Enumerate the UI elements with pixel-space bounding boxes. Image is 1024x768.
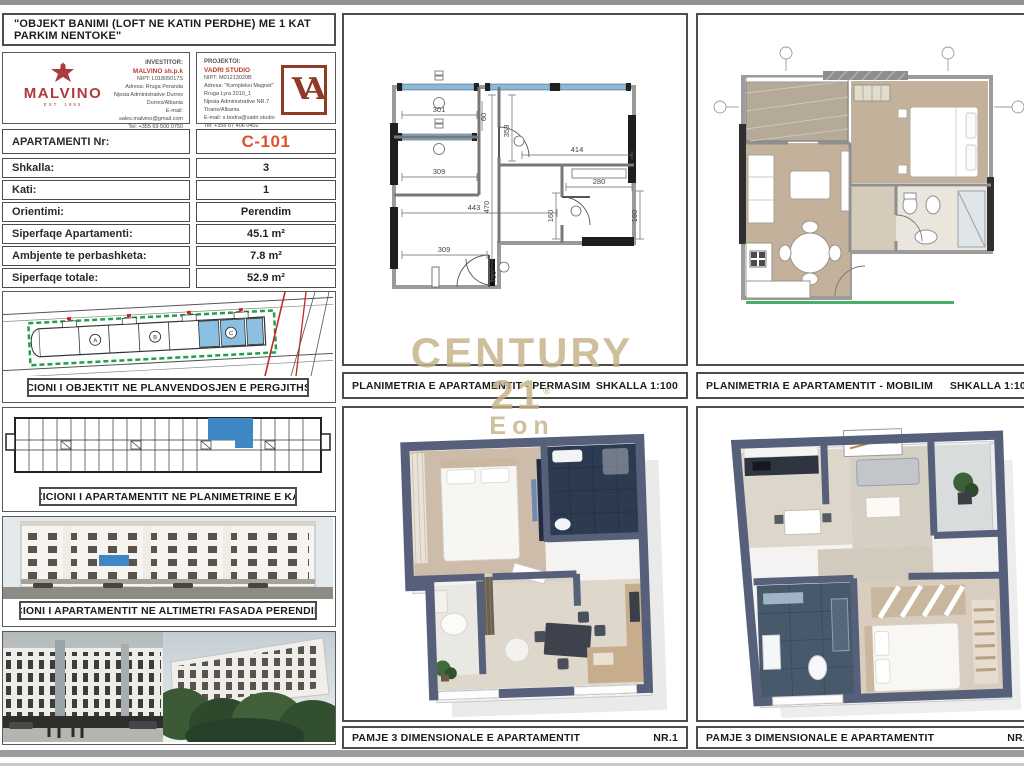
key-plan-drawing xyxy=(3,408,333,484)
elevation-highlighted-apartment xyxy=(99,555,129,566)
view2-clothes-rail xyxy=(971,599,998,684)
site-unit-b-label: B xyxy=(153,335,157,341)
mobilim-plan-panel xyxy=(696,13,1024,366)
photo-car xyxy=(129,721,157,729)
designer-details: PROJEKTOI: VADRI STUDIO NIPT: M01213020B… xyxy=(204,59,282,131)
elevation-caption: POZICIONI I APARTAMENTIT NE ALTIMETRI FA… xyxy=(19,601,317,620)
mobilim-plan-drawing xyxy=(698,15,1024,364)
mobilim-caption-bar: PLANIMETRIA E APARTAMENTIT - MOBILIM SHK… xyxy=(696,372,1024,399)
permasim-plan-drawing: 301 60 309 358 414 443 470 280 160 160 3… xyxy=(344,15,686,364)
svg-text:301: 301 xyxy=(433,105,446,114)
sheet-edge-band-bottom xyxy=(0,750,1024,757)
svg-text:280: 280 xyxy=(593,177,606,186)
site-unit-c-wing xyxy=(198,320,219,347)
investor-company: MALVINO sh.p.k xyxy=(111,68,183,75)
mobilim-green-line xyxy=(746,301,954,304)
sheet-edge-band-top xyxy=(0,0,1024,5)
mobilim-bed xyxy=(898,107,978,177)
table-row: Siperfaqe totale: 52.9 m² xyxy=(2,268,336,288)
investor-heading: INVESTITOR: xyxy=(111,60,183,66)
designer-block: PROJEKTOI: VADRI STUDIO NIPT: M01213020B… xyxy=(196,52,336,124)
view1-panel xyxy=(342,406,688,722)
svg-text:470: 470 xyxy=(482,201,491,214)
row-label: APARTAMENTI Nr: xyxy=(2,129,190,154)
designer-line: E-mail: s.bodra@vadri.studio xyxy=(204,115,282,123)
malvino-logo: MALVINO EST. 1995 xyxy=(17,61,109,107)
table-row: Kati: 1 xyxy=(2,180,336,200)
site-plan-section: A B C POZICIONI I OBJEKTIT NE PLANVENDOS… xyxy=(2,291,336,403)
sheet-title: "OBJEKT BANIMI (LOFT NE KATIN PERDHE) ME… xyxy=(2,13,336,46)
view1-3d-drawing xyxy=(344,408,686,720)
svg-text:309: 309 xyxy=(438,245,451,254)
view2-wardrobe xyxy=(871,584,966,617)
view1-side-table xyxy=(505,638,530,663)
designer-studio: VADRI STUDIO xyxy=(204,67,282,74)
svg-text:160: 160 xyxy=(546,210,555,223)
elevation-drawing xyxy=(3,517,333,599)
mobilim-sofa xyxy=(748,155,774,223)
site-unit-a-label: A xyxy=(93,338,97,344)
row-label: Siperfaqe totale: xyxy=(2,268,190,288)
designer-line: Adresa: "Kompleksi Magnet" xyxy=(204,83,282,91)
view2-caption-bar: PAMJE 3 DIMENSIONALE E APARTAMENTIT NR.2 xyxy=(696,726,1024,749)
svg-text:90: 90 xyxy=(489,271,498,279)
apartment-number: C-101 xyxy=(196,129,336,154)
permasim-caption: PLANIMETRIA E APARTAMENTIT - PERMASIM xyxy=(352,380,590,392)
mobilim-balcony xyxy=(746,77,848,141)
render-photos xyxy=(2,631,336,745)
view2-bed xyxy=(864,623,960,692)
investor-details: INVESTITOR: MALVINO sh.p.k NIPT: L018050… xyxy=(111,60,183,132)
designer-line: Rruga Lyra 2010_1 xyxy=(204,91,282,99)
row-value: 1 xyxy=(196,180,336,200)
view2-caption: PAMJE 3 DIMENSIONALE E APARTAMENTIT xyxy=(706,732,934,744)
svg-text:358: 358 xyxy=(502,125,511,138)
permasim-scale: SHKALLA 1:100 xyxy=(596,380,678,392)
permasim-plan-panel: 301 60 309 358 414 443 470 280 160 160 3… xyxy=(342,13,688,366)
designer-line: Njesia Administrative NR.7 xyxy=(204,99,282,107)
row-value: 52.9 m² xyxy=(196,268,336,288)
site-plan-roads: A B C xyxy=(3,297,333,376)
mobilim-scale: SHKALLA 1:100 xyxy=(950,380,1024,392)
view2-panel xyxy=(696,406,1024,722)
view2-small-table xyxy=(784,509,821,534)
mobilim-caption: PLANIMETRIA E APARTAMENTIT - MOBILIM xyxy=(706,380,933,392)
view1-caption: PAMJE 3 DIMENSIONALE E APARTAMENTIT xyxy=(352,732,580,744)
designer-line: NIPT: M01213020B xyxy=(204,75,282,83)
svg-text:160: 160 xyxy=(630,210,639,223)
sheet-edge-line-bottom xyxy=(0,763,1024,766)
row-label: Ambjente te perbashketa: xyxy=(2,246,190,266)
investor-brand-sub: EST. 1995 xyxy=(17,102,109,107)
view2-coffee-table xyxy=(866,497,901,518)
investor-line: Adresa: Rruga Peranda xyxy=(111,84,183,92)
investor-block: MALVINO EST. 1995 INVESTITOR: MALVINO sh… xyxy=(2,52,190,124)
svg-text:309: 309 xyxy=(433,167,446,176)
row-value: 45.1 m² xyxy=(196,224,336,244)
row-value: Perendim xyxy=(196,202,336,222)
photo-car xyxy=(9,722,33,729)
mobilim-hall-floor xyxy=(851,185,896,250)
view1-caption-bar: PAMJE 3 DIMENSIONALE E APARTAMENTIT NR.1 xyxy=(342,726,688,749)
table-row: Orientimi: Perendim xyxy=(2,202,336,222)
svg-text:443: 443 xyxy=(468,203,481,212)
permasim-caption-bar: PLANIMETRIA E APARTAMENTIT - PERMASIM SH… xyxy=(342,372,688,399)
row-value: 3 xyxy=(196,158,336,178)
designer-heading: PROJEKTOI: xyxy=(204,59,282,65)
site-building: A B C xyxy=(30,307,266,357)
photo-street-view xyxy=(3,632,163,742)
view2-sofa xyxy=(856,458,919,486)
mobilim-coffee-table xyxy=(790,171,830,199)
view2-3d-drawing xyxy=(698,408,1024,720)
investor-line: NIPT: L01805017S xyxy=(111,76,183,84)
view1-number: NR.1 xyxy=(653,732,678,744)
elevation-section: POZICIONI I APARTAMENTIT NE ALTIMETRI FA… xyxy=(2,516,336,627)
va-logo-monogram: VA xyxy=(292,75,316,105)
table-row: Shkalla: 3 xyxy=(2,158,336,178)
view2-number: NR.2 xyxy=(1007,732,1024,744)
photo-garden-view xyxy=(163,632,335,742)
table-row: Siperfaqe Apartamenti: 45.1 m² xyxy=(2,224,336,244)
svg-text:414: 414 xyxy=(571,145,584,154)
site-plan-drawing: A B C xyxy=(3,292,333,376)
investor-line: Njesia Administrative Durres xyxy=(111,92,183,100)
svg-text:60: 60 xyxy=(479,113,488,121)
investor-line: E-mail: sales.malvino@gmail.com xyxy=(111,108,183,124)
investor-line: Durres/Albania xyxy=(111,100,183,108)
radiator xyxy=(432,267,439,287)
table-row: Ambjente te perbashketa: 7.8 m² xyxy=(2,246,336,266)
row-label: Siperfaqe Apartamenti: xyxy=(2,224,190,244)
row-value: 7.8 m² xyxy=(196,246,336,266)
site-plan-caption: POZICIONI I OBJEKTIT NE PLANVENDOSJEN E … xyxy=(27,378,309,397)
key-plan-caption: POZICIONI I APARTAMENTIT NE PLANIMETRINE… xyxy=(39,487,297,506)
row-label: Kati: xyxy=(2,180,190,200)
row-label: Shkalla: xyxy=(2,158,190,178)
mobilim-tv-unit xyxy=(841,151,849,211)
row-label: Orientimi: xyxy=(2,202,190,222)
designer-line: Tirane/Albania xyxy=(204,107,282,115)
drawing-sheet: "OBJEKT BANIMI (LOFT NE KATIN PERDHE) ME… xyxy=(0,0,1024,768)
key-plan-section: POZICIONI I APARTAMENTIT NE PLANIMETRINE… xyxy=(2,407,336,512)
table-row: APARTAMENTI Nr: C-101 xyxy=(2,129,336,154)
va-logo: VA xyxy=(281,65,327,115)
malvino-star-icon xyxy=(50,61,76,85)
investor-brand: MALVINO xyxy=(17,85,109,102)
